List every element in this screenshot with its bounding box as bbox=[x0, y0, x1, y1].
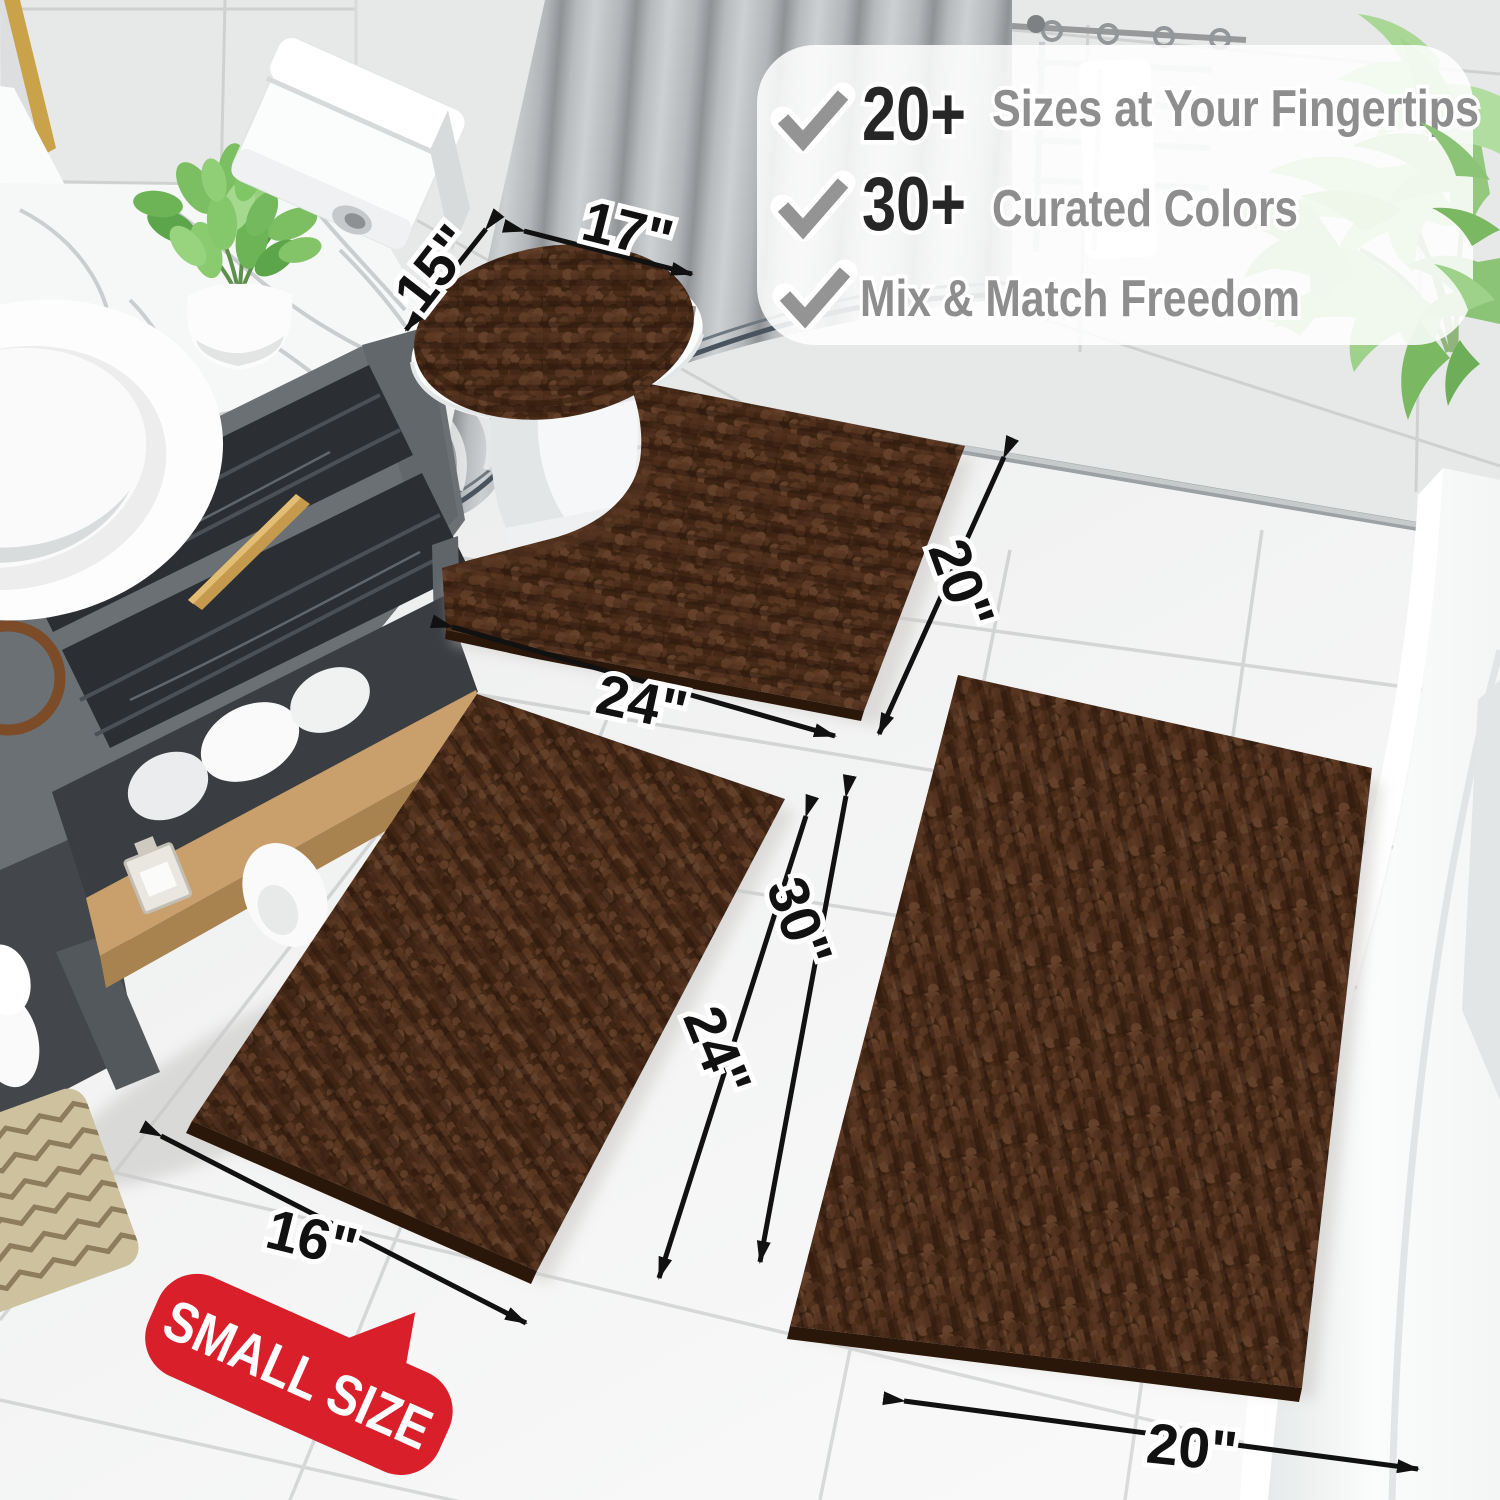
svg-text:Sizes at Your Fingertips: Sizes at Your Fingertips bbox=[992, 80, 1479, 138]
svg-text:Curated Colors: Curated Colors bbox=[992, 180, 1298, 238]
svg-text:Mix & Match Freedom: Mix & Match Freedom bbox=[860, 270, 1300, 328]
svg-text:20": 20" bbox=[1144, 1411, 1241, 1484]
svg-text:30+: 30+ bbox=[862, 162, 966, 247]
svg-text:20+: 20+ bbox=[862, 72, 966, 157]
